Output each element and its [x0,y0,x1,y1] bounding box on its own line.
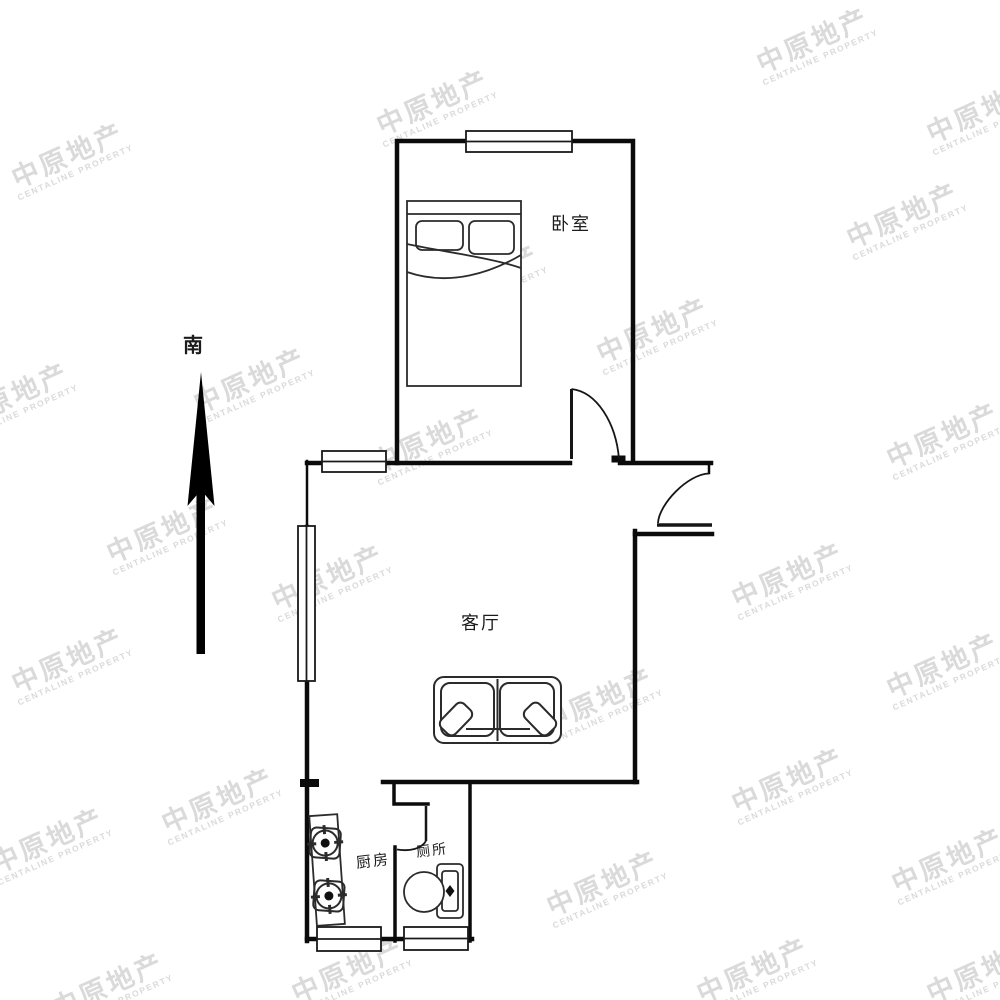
kitchen-label: 厨房 [355,848,391,873]
north-arrow [188,372,215,654]
bedroom-door [572,389,620,459]
kitchen-window [317,927,381,951]
stove [305,814,349,926]
bed [407,201,521,386]
living-top-window [322,451,386,472]
toilet-window [404,927,468,950]
living-left-window [298,526,315,681]
floor-plan-svg [0,0,1000,1000]
stove-burner-top [306,824,344,862]
stove-burner-bottom [310,877,348,915]
south-direction-label: 南 [183,329,203,358]
toilet-label: 厕所 [415,838,449,862]
bedroom-label: 卧室 [551,210,591,236]
entry-door [657,474,712,526]
toilet-fixture [404,864,463,918]
bedroom-window [466,131,572,152]
living-room-label: 客厅 [461,609,501,635]
floor-plan-image: 中原地产CENTALINE PROPERTY中原地产CENTALINE PROP… [0,0,1000,1000]
sofa [434,677,561,743]
